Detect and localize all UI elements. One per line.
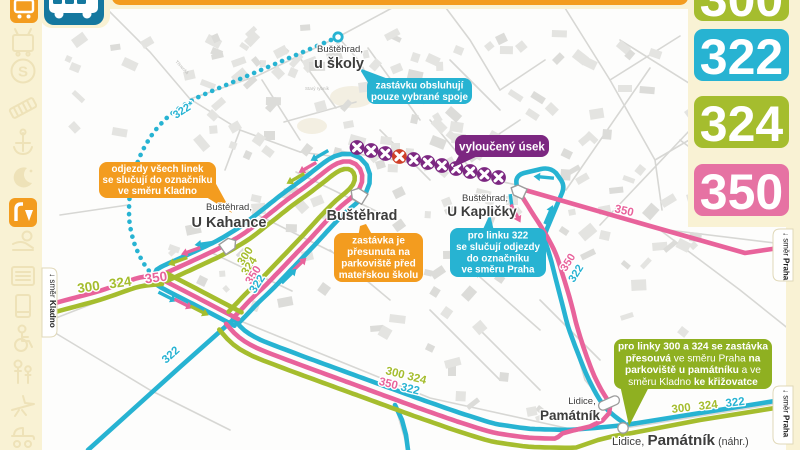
svg-text:do označníku: do označníku (467, 253, 530, 264)
svg-text:se slučují odjezdy: se slučují odjezdy (456, 242, 540, 253)
svg-text:300: 300 (76, 278, 100, 296)
svg-text:Buštěhrad,: Buštěhrad, (317, 44, 363, 55)
svg-text:322: 322 (725, 396, 746, 410)
svg-text:Památník: Památník (540, 408, 601, 423)
svg-text:mateřskou školu: mateřskou školu (339, 270, 418, 281)
svg-text:u školy: u školy (314, 56, 364, 72)
svg-text:U Kapličky: U Kapličky (447, 204, 517, 219)
svg-text:ve směru Praha: ve směru Praha (462, 265, 536, 276)
svg-text:Buštěhrad,: Buštěhrad, (206, 202, 252, 213)
svg-text:S: S (18, 64, 28, 81)
svg-text:přesouvá ve směru Praha na: přesouvá ve směru Praha na (626, 353, 761, 364)
svg-text:zastávka je: zastávka je (352, 236, 405, 247)
svg-text:324: 324 (700, 96, 784, 152)
svg-text:350: 350 (700, 164, 783, 220)
svg-text:ve směru Kladno: ve směru Kladno (118, 186, 197, 197)
svg-text:přesunuta na: přesunuta na (347, 247, 410, 258)
svg-text:300: 300 (700, 0, 783, 27)
svg-text:324: 324 (698, 399, 719, 413)
svg-text:směru Kladno ke křižovatce: směru Kladno ke křižovatce (628, 377, 758, 388)
svg-text:Buštěhrad: Buštěhrad (327, 208, 398, 224)
svg-text:322: 322 (700, 29, 783, 85)
svg-text:Lidice,: Lidice, (568, 396, 595, 407)
svg-text:350: 350 (144, 269, 168, 287)
svg-text:zastávku obsluhují: zastávku obsluhují (376, 80, 464, 91)
svg-text:se slučují do označníku: se slučují do označníku (103, 175, 213, 186)
svg-text:pouze vybrané spoje: pouze vybrané spoje (371, 92, 468, 103)
svg-text:↓ směr Praha: ↓ směr Praha (782, 389, 791, 438)
svg-text:Buštěhrad,: Buštěhrad, (462, 193, 508, 204)
svg-text:parkoviště před: parkoviště před (341, 258, 415, 269)
svg-text:pro linku 322: pro linku 322 (468, 231, 529, 242)
svg-text:↓ směr Kladno: ↓ směr Kladno (48, 273, 57, 328)
svg-text:odjezdy všech linek: odjezdy všech linek (111, 164, 204, 175)
svg-text:vyloučený úsek: vyloučený úsek (459, 142, 545, 154)
svg-text:parkoviště u památníku a ve: parkoviště u památníku a ve (625, 365, 761, 376)
svg-text:300: 300 (671, 402, 692, 416)
svg-text:pro linky 300 a 324 se zastávk: pro linky 300 a 324 se zastávka (618, 342, 768, 353)
svg-text:Starý rybník: Starý rybník (305, 86, 330, 91)
svg-text:U Kahance: U Kahance (192, 215, 267, 231)
svg-text:↓ směr Praha: ↓ směr Praha (782, 232, 791, 281)
svg-text:324: 324 (108, 273, 133, 291)
